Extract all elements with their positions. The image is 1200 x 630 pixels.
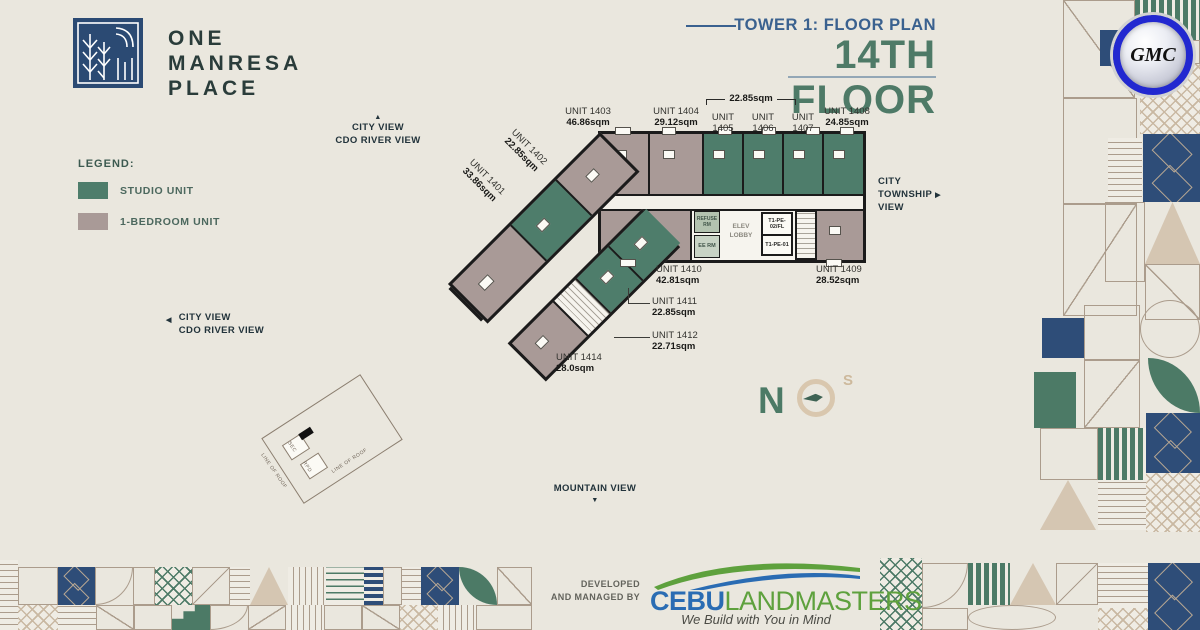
pattern-tile (58, 567, 95, 605)
pattern-tile (1140, 300, 1200, 358)
pattern-tile (364, 567, 383, 605)
unit-label-1401: UNIT 140133.86sqm (445, 143, 522, 220)
view-label-top: ▲ CITY VIEW CDO RIVER VIEW (328, 113, 428, 148)
legend-item-1bedroom: 1-BEDROOM UNIT (78, 213, 220, 230)
cebu-landmasters-tagline: We Build with You in Mind (650, 612, 862, 627)
pattern-tile (18, 567, 58, 605)
pattern-tile (1098, 428, 1146, 480)
unit-1407-area (784, 134, 824, 196)
unit-1404-area (650, 134, 704, 196)
pattern-tile (1143, 134, 1200, 202)
unit-1408-area (824, 134, 863, 196)
pattern-tile (1146, 473, 1200, 532)
view-label-right: CITY TOWNSHIP ▶ VIEW (878, 176, 941, 214)
fixture (833, 150, 845, 159)
shaft-t1-pe-02-label: T1-PE-02/FL (763, 214, 791, 236)
pattern-tile (192, 567, 230, 605)
gmc-badge-icon: GMC (1113, 15, 1193, 95)
pattern-tile (497, 567, 532, 605)
legend-item-studio: STUDIO UNIT (78, 182, 194, 199)
unit-1406-area (744, 134, 784, 196)
pattern-tile (1098, 608, 1148, 630)
core-stair (795, 210, 817, 260)
pattern-tile (58, 605, 96, 630)
pattern-tile (250, 567, 288, 605)
pattern-tile (96, 605, 134, 630)
pattern-tile (210, 605, 248, 630)
shaft-t1-pe-01-label: T1-PE-01 (763, 236, 791, 254)
unit-label-1409: UNIT 140928.52sqm (816, 264, 888, 286)
pattern-tile (968, 563, 1010, 605)
unit-label-1405: UNIT 1405 (704, 112, 742, 134)
unit-label-1406: UNIT 1406 (744, 112, 782, 134)
pattern-tile (922, 608, 968, 630)
pattern-tile (288, 567, 326, 605)
fixture (663, 150, 675, 159)
pattern-tile (230, 567, 250, 605)
one-bedroom-swatch (78, 213, 108, 230)
roof-plan-outline: SEC RPD LINE OF ROOF LINE OF ROOF (245, 372, 405, 517)
pattern-tile (1084, 360, 1140, 428)
pattern-tile (1145, 202, 1200, 264)
shared-area-bracket: 22.85sqm (706, 93, 796, 105)
pattern-tile (1098, 480, 1146, 530)
fixture (713, 150, 725, 159)
pattern-tile (362, 605, 400, 630)
title-underline (788, 76, 936, 78)
fixture (829, 226, 841, 235)
unit-label-1410: UNIT 141042.81sqm (656, 264, 728, 286)
pattern-tile (0, 560, 18, 630)
leader-line (628, 303, 650, 304)
pattern-tile (1108, 138, 1142, 202)
elevator-shafts: T1-PE-02/FL T1-PE-01 (761, 212, 793, 256)
pattern-tile (248, 605, 286, 630)
left-arrow-icon: ◀ (166, 316, 172, 338)
unit-label-1412: UNIT 141222.71sqm (652, 330, 724, 352)
developer-credit: DEVELOPED AND MANAGED BY (540, 578, 640, 603)
decorative-pattern-bottom-left (0, 558, 532, 630)
pattern-tile (18, 605, 58, 630)
ee-room-label: EE RM (698, 243, 715, 250)
pattern-tile (286, 605, 324, 630)
unit-label-1411: UNIT 141122.85sqm (652, 296, 724, 318)
studio-swatch (78, 182, 108, 199)
pattern-tile (1034, 372, 1076, 428)
pattern-tile (1098, 563, 1148, 608)
unit-label-1408: UNIT 140824.85sqm (808, 106, 886, 128)
pattern-tile (95, 567, 133, 605)
balcony-ledge (620, 259, 636, 267)
pattern-tile (1105, 202, 1145, 282)
pattern-tile (922, 563, 968, 608)
compass-south-label: S (843, 372, 853, 389)
pattern-tile (324, 605, 362, 630)
pattern-tile (438, 605, 476, 630)
one-manresa-floorplan-banner: ONE MANRESA PLACE TOWER 1: FLOOR PLAN 14… (0, 0, 1200, 630)
pattern-tile (155, 567, 192, 605)
pattern-tile (459, 567, 497, 605)
unit-label-1403: UNIT 140346.86sqm (548, 106, 628, 128)
legend-title: LEGEND: (78, 158, 135, 170)
pattern-tile (383, 567, 402, 605)
pattern-tile (1084, 305, 1140, 360)
down-arrow-icon: ▼ (540, 496, 650, 505)
pattern-tile (133, 567, 155, 605)
pattern-tile (1148, 358, 1200, 413)
pattern-tile (476, 605, 532, 630)
pattern-tile (1010, 563, 1056, 605)
unit-label-1414: UNIT 141428.0sqm (556, 352, 628, 374)
brand-logo-icon (73, 18, 143, 88)
brand-name: ONE MANRESA PLACE (168, 26, 302, 101)
right-arrow-icon: ▶ (935, 192, 941, 199)
pattern-tile (1056, 563, 1098, 605)
pattern-tile (326, 567, 364, 605)
pattern-tile (134, 605, 172, 630)
refuse-room-label: REFUSE RM (695, 216, 719, 228)
leader-line (628, 288, 629, 304)
pattern-tile (400, 605, 438, 630)
decorative-pattern-bottom-right (876, 556, 1200, 630)
pattern-tile (172, 605, 210, 630)
pattern-tile (968, 605, 1056, 630)
view-label-bottom: MOUNTAIN VIEW ▼ (540, 483, 650, 505)
pattern-tile (1148, 563, 1200, 630)
pattern-tile (1042, 318, 1084, 358)
unit-1405-area (704, 134, 744, 196)
elev-lobby-label: ELEV LOBBY (722, 222, 760, 240)
view-label-left: ◀ CITY VIEW CDO RIVER VIEW (166, 312, 264, 338)
pattern-tile (1040, 428, 1098, 480)
up-arrow-icon: ▲ (328, 113, 428, 122)
pattern-tile (402, 567, 421, 605)
fixture (585, 168, 600, 183)
pattern-tile (1040, 480, 1096, 530)
fixture (753, 150, 765, 159)
compass-north-label: N (758, 380, 785, 422)
pattern-tile (421, 567, 459, 605)
fixture (793, 150, 805, 159)
leader-line (614, 337, 650, 338)
pattern-tile (1146, 413, 1200, 473)
